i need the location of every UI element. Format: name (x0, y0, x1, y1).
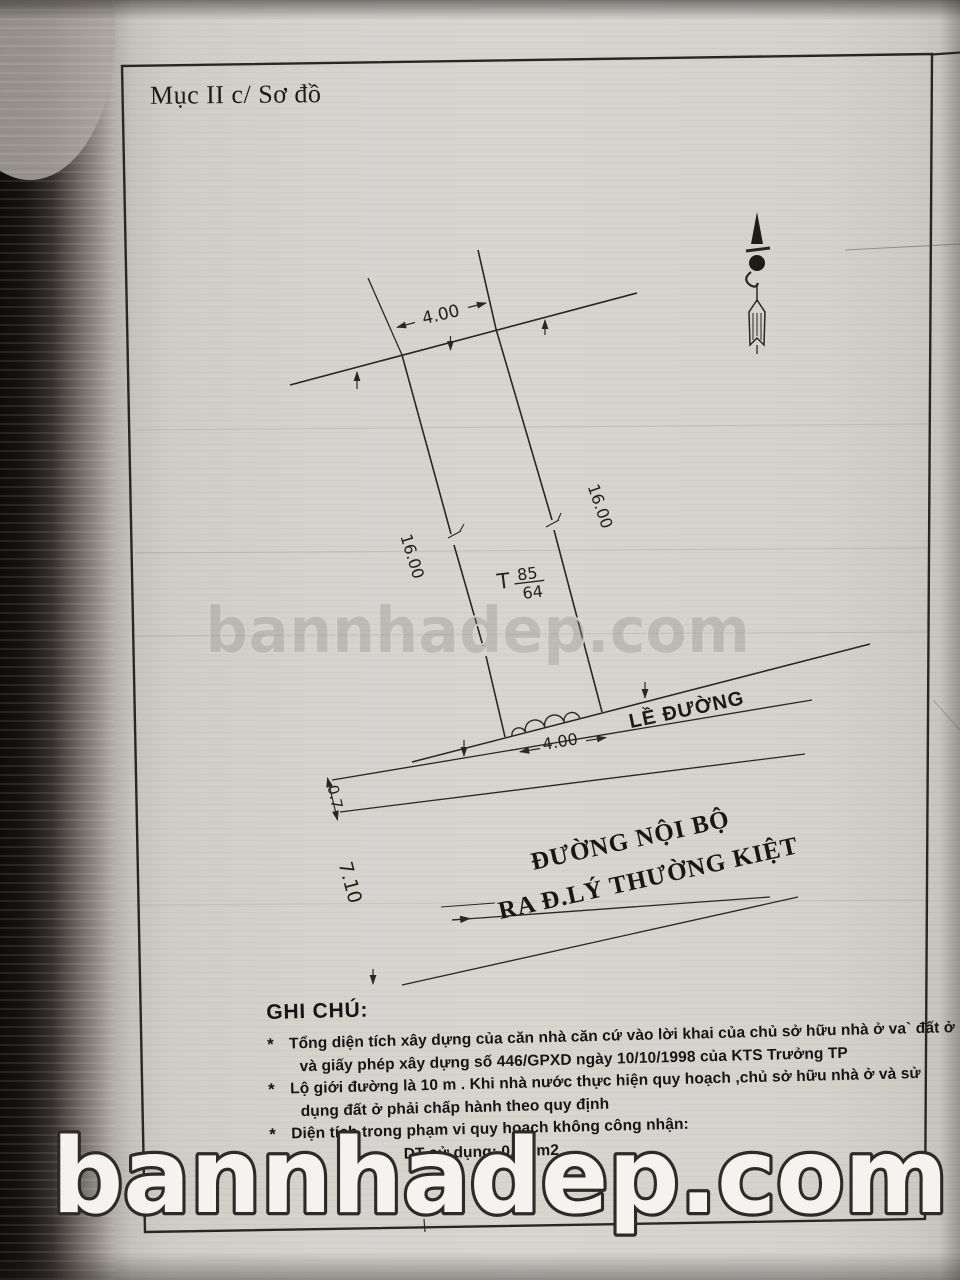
note-bullet: * (267, 1033, 290, 1056)
note-bullet: * (268, 1078, 291, 1101)
notes-section: GHI CHÚ: * Tổng diện tích xây dựng của c… (266, 985, 910, 1169)
note-bullet: * (269, 1123, 292, 1146)
page-title: Mục II c/ Sơ đồ (150, 79, 322, 111)
scanned-document-photo: Mục II c/ Sơ đồ GHI CHÚ: * Tổng diện tíc… (0, 0, 960, 1280)
